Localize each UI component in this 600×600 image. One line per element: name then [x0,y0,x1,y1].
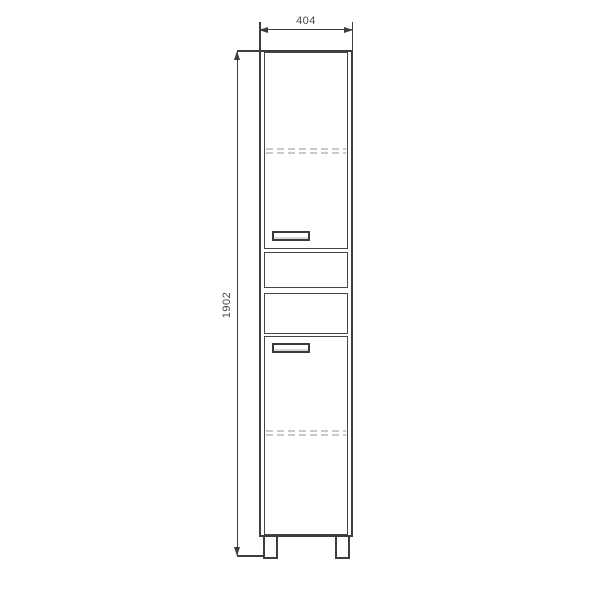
cabinet-leg-right [335,537,350,559]
height-extension-line-bottom [237,555,264,557]
lower-shelf-hidden-line-2 [266,434,346,436]
width-extension-line-left [259,22,261,50]
height-dimension-label: 1902 [221,292,233,318]
height-dimension-line [237,51,239,556]
upper-door-panel [264,52,348,249]
height-dimension-label-box: 1902 [207,285,247,325]
cabinet-leg-left [263,537,278,559]
lower-door-handle [272,343,310,353]
lower-shelf-hidden-line-1 [266,430,346,432]
upper-shelf-hidden-line-2 [266,152,346,154]
width-dimension-label: 404 [259,15,353,27]
drawer-front-1 [264,252,348,288]
technical-drawing-canvas: 404 1902 [0,0,600,600]
upper-shelf-hidden-line-1 [266,148,346,150]
upper-door-handle [272,231,310,241]
drawer-front-2 [264,293,348,334]
dimension-arrow-up-icon [234,51,240,60]
width-dimension-line [259,29,353,31]
width-extension-line-right [352,22,354,50]
height-extension-line-top [237,50,260,52]
